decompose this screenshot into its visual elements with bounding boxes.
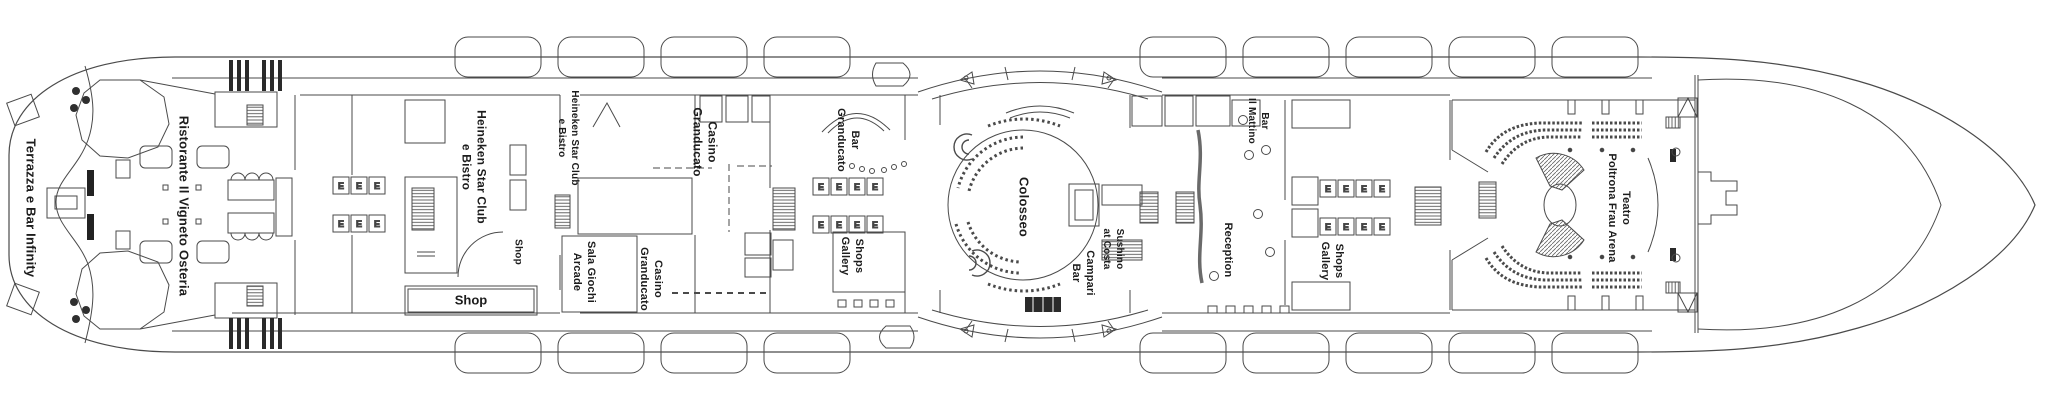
- elevator-icon: E: [374, 219, 380, 229]
- elevator-icon: E: [374, 181, 380, 191]
- label-shops-gallery-fwd: Shops Gallery: [1318, 242, 1346, 281]
- label-bar-il-mattino: Bar Il Mattino: [1244, 98, 1270, 144]
- promenade-bulge-bottom: [918, 297, 1162, 342]
- elevator-icon: E: [872, 220, 878, 230]
- label-terrazza-bar-infinity: Terrazza e Bar Infinity: [22, 139, 39, 278]
- elevator-icon: E: [818, 220, 824, 230]
- label-shop-small: Shop: [511, 239, 524, 265]
- bow-section: [1672, 75, 1737, 333]
- label-teatro-poltrona-frau-arena: Teatro Poltrona Frau Arena: [1605, 153, 1633, 262]
- elevator-bank-aft: E E E E E E: [333, 177, 385, 232]
- label-sushino-at-costa: Sushino at Costa: [1099, 228, 1125, 269]
- tender-boat-top: [873, 63, 911, 86]
- elevator-icon: E: [338, 219, 344, 229]
- elevator-icon: E: [854, 182, 860, 192]
- elevator-icon: E: [1379, 184, 1385, 194]
- label-ristorante-il-vigneto-osteria: Ristorante Il Vigneto Osteria: [175, 116, 192, 296]
- elevator-icon: E: [356, 219, 362, 229]
- tender-boat-bottom: [880, 326, 915, 348]
- elevator-icon: E: [1325, 184, 1331, 194]
- elevator-icon: E: [1325, 222, 1331, 232]
- label-campari-bar: Campari Bar: [1069, 250, 1097, 295]
- elevator-icon: E: [836, 220, 842, 230]
- label-casino-granducato-lower: Casino Granducato: [637, 247, 665, 311]
- elevator-icon: E: [854, 220, 860, 230]
- elevator-icon: E: [1361, 184, 1367, 194]
- elevator-icon: E: [338, 181, 344, 191]
- label-shops-gallery-mid: Shops Gallery: [838, 237, 866, 276]
- elevator-icon: E: [1343, 184, 1349, 194]
- elevator-icon: E: [1379, 222, 1385, 232]
- label-casino-granducato-upper: Casino Granducato: [689, 107, 720, 176]
- elevator-icon: E: [836, 182, 842, 192]
- label-heineken-star-club-small: Heineken Star Club e Bistro: [554, 90, 580, 185]
- elevator-icon: E: [356, 181, 362, 191]
- promenade-bulge-top: [918, 67, 1162, 118]
- label-sala-giochi-arcade: Sala Giochi Arcade: [570, 241, 598, 303]
- deck-plan: E E E E E E: [0, 0, 2048, 409]
- lifeboats: [455, 37, 1638, 373]
- label-bar-granducato: Bar Granducato: [834, 108, 862, 172]
- label-heineken-star-club-main: Heineken Star Club e Bistro: [458, 110, 489, 224]
- stern-terrace: [7, 66, 94, 343]
- label-colosseo: Colosseo: [1015, 177, 1032, 237]
- elevator-icon: E: [1361, 222, 1367, 232]
- label-shop-box: Shop: [455, 293, 488, 308]
- label-reception: Reception: [1221, 223, 1235, 278]
- elevator-icon: E: [1343, 222, 1349, 232]
- elevator-icon: E: [818, 182, 824, 192]
- elevator-icon: E: [872, 182, 878, 192]
